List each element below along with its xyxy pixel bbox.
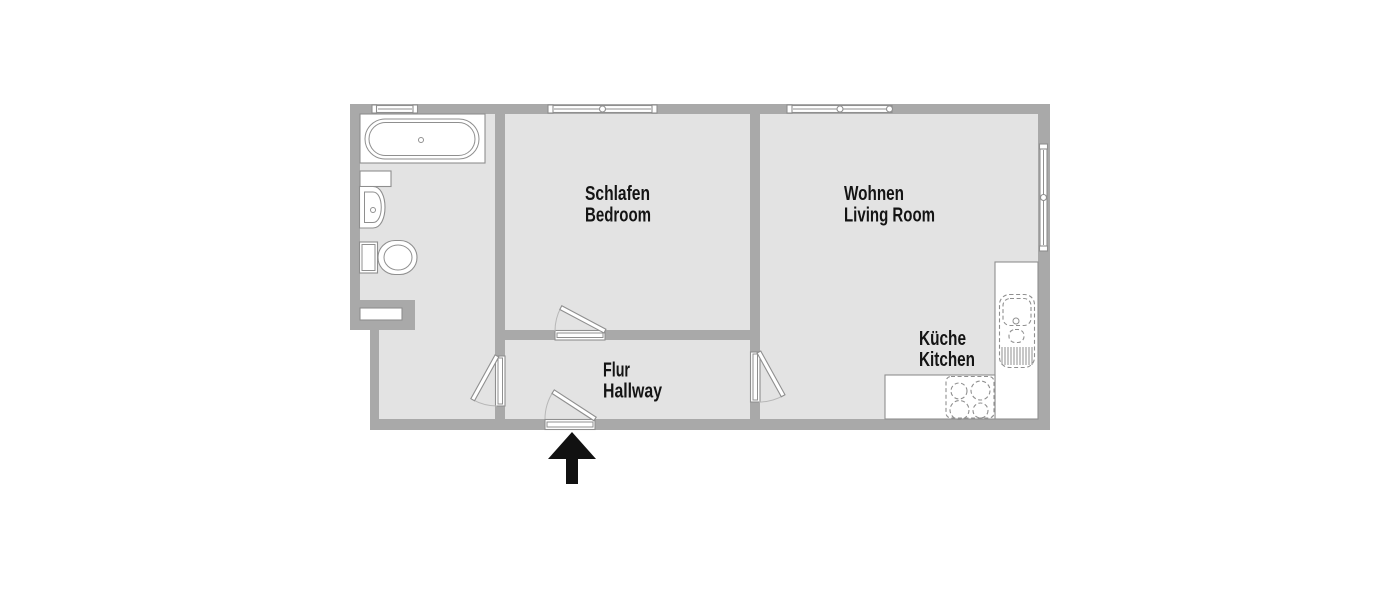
bedroom-label-en: Bedroom: [585, 205, 651, 227]
entrance-arrow-icon: [548, 432, 596, 484]
bedroom-label-de: Schlafen: [585, 183, 650, 205]
wall-bathroom-bedroom: [495, 114, 505, 356]
wall-left-upper: [350, 104, 360, 330]
living-room-label-en: Living Room: [844, 205, 935, 227]
wall-left-lower: [370, 330, 379, 430]
wall-bottom: [370, 419, 1050, 430]
wall-bathroom-hallway-lower: [495, 406, 505, 419]
floor-plan-page: Schlafen Bedroom Wohnen Living Room Küch…: [0, 0, 1400, 600]
floor-mid: [415, 300, 1038, 330]
wall-niche: [360, 308, 402, 320]
hallway-label-de: Flur: [603, 360, 630, 382]
bathtub-icon: [360, 114, 485, 163]
kitchen-label-de: Küche: [919, 328, 966, 350]
wall-top: [350, 104, 1050, 114]
kitchen-label-en: Kitchen: [919, 349, 975, 371]
toilet-icon: [360, 241, 418, 275]
wall-bedroom-living: [750, 114, 760, 352]
living-room-label-de: Wohnen: [844, 183, 904, 205]
wall-hallway-living-lower: [750, 402, 760, 419]
floor-plan: Schlafen Bedroom Wohnen Living Room Küch…: [0, 0, 1400, 600]
window-living-room-icon: [787, 105, 893, 113]
window-bedroom-icon: [548, 105, 657, 113]
window-living-room-right-icon: [1040, 144, 1048, 251]
hallway-label-en: Hallway: [603, 381, 663, 403]
window-bathroom-icon: [372, 105, 418, 113]
wall-bedroom-hallway: [495, 330, 760, 340]
kitchen-counter-right: [995, 262, 1038, 419]
